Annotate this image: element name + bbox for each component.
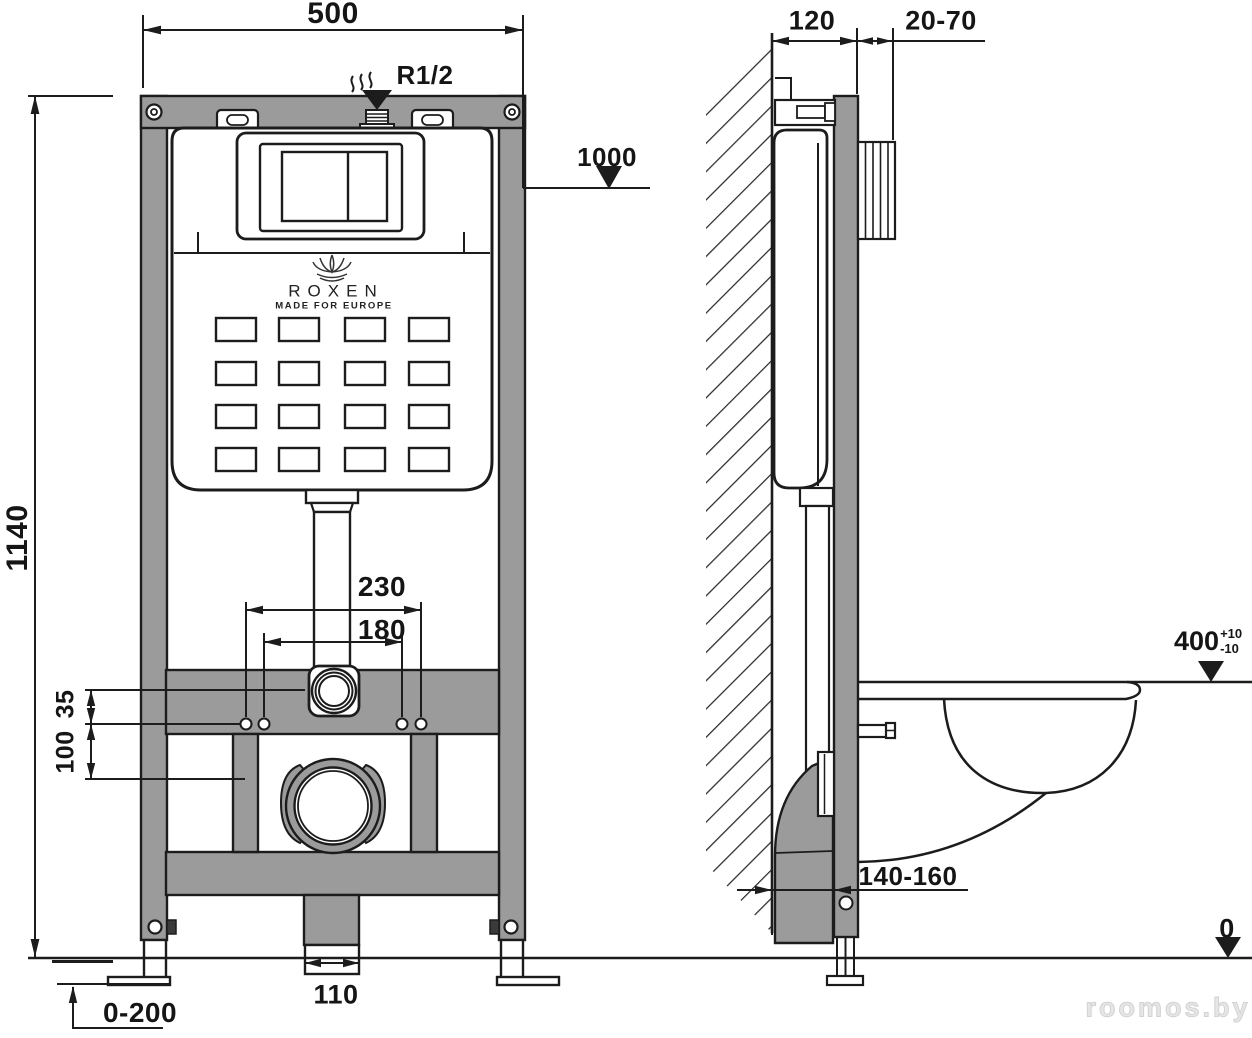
dim-label-leg-adjust: 0-200 (103, 999, 177, 1027)
dim-label-inner-holes: 180 (358, 616, 406, 644)
side-frame-rail (834, 96, 858, 937)
dim-label-frame-height: 1140 (3, 504, 33, 571)
dim-label-frame-depth: 120 (789, 8, 836, 35)
dim-label-seat-tol-minus: -10 (1220, 642, 1242, 657)
dim-label-seat-height-group: 400 +10 -10 (1174, 627, 1242, 657)
flush-plate (237, 133, 424, 239)
brand-tagline: MADE FOR EUROPE (275, 301, 392, 311)
side-cistern (774, 130, 827, 488)
dim-label-inlet-thread: R1/2 (397, 62, 454, 88)
toilet-bowl-profile (858, 682, 1140, 862)
watermark: roomos.by (1085, 993, 1250, 1024)
installation-frame-drawing: 500 R1/2 1000 1140 230 180 35 100 110 0-… (0, 0, 1252, 1038)
dim-label-button-height: 1000 (577, 144, 637, 170)
side-flush-pipe (800, 488, 833, 770)
finished-wall-layer (858, 142, 895, 239)
mounting-rod (858, 723, 895, 738)
dim-label-floor-level: 0 (1219, 916, 1235, 943)
brand-name: ROXEN (288, 283, 383, 300)
dim-label-offset-small: 35 (54, 690, 79, 719)
dim-label-seat-tol-plus: +10 (1220, 627, 1242, 642)
side-view-wall (706, 33, 772, 933)
drain-outlet (281, 759, 385, 853)
dim-label-seat-height: 400 (1174, 629, 1219, 656)
dim-label-drain-width: 110 (313, 982, 358, 1009)
dim-label-offset-large: 100 (54, 730, 79, 773)
dim-label-frame-width: 500 (307, 0, 359, 29)
inlet-flange (309, 666, 359, 716)
dim-label-cladding: 20-70 (905, 8, 977, 35)
dim-label-outer-holes: 230 (358, 573, 406, 601)
dim-label-outlet-offset: 140-160 (859, 863, 958, 889)
side-wall-bracket (775, 78, 835, 125)
side-drain-elbow (775, 752, 834, 943)
